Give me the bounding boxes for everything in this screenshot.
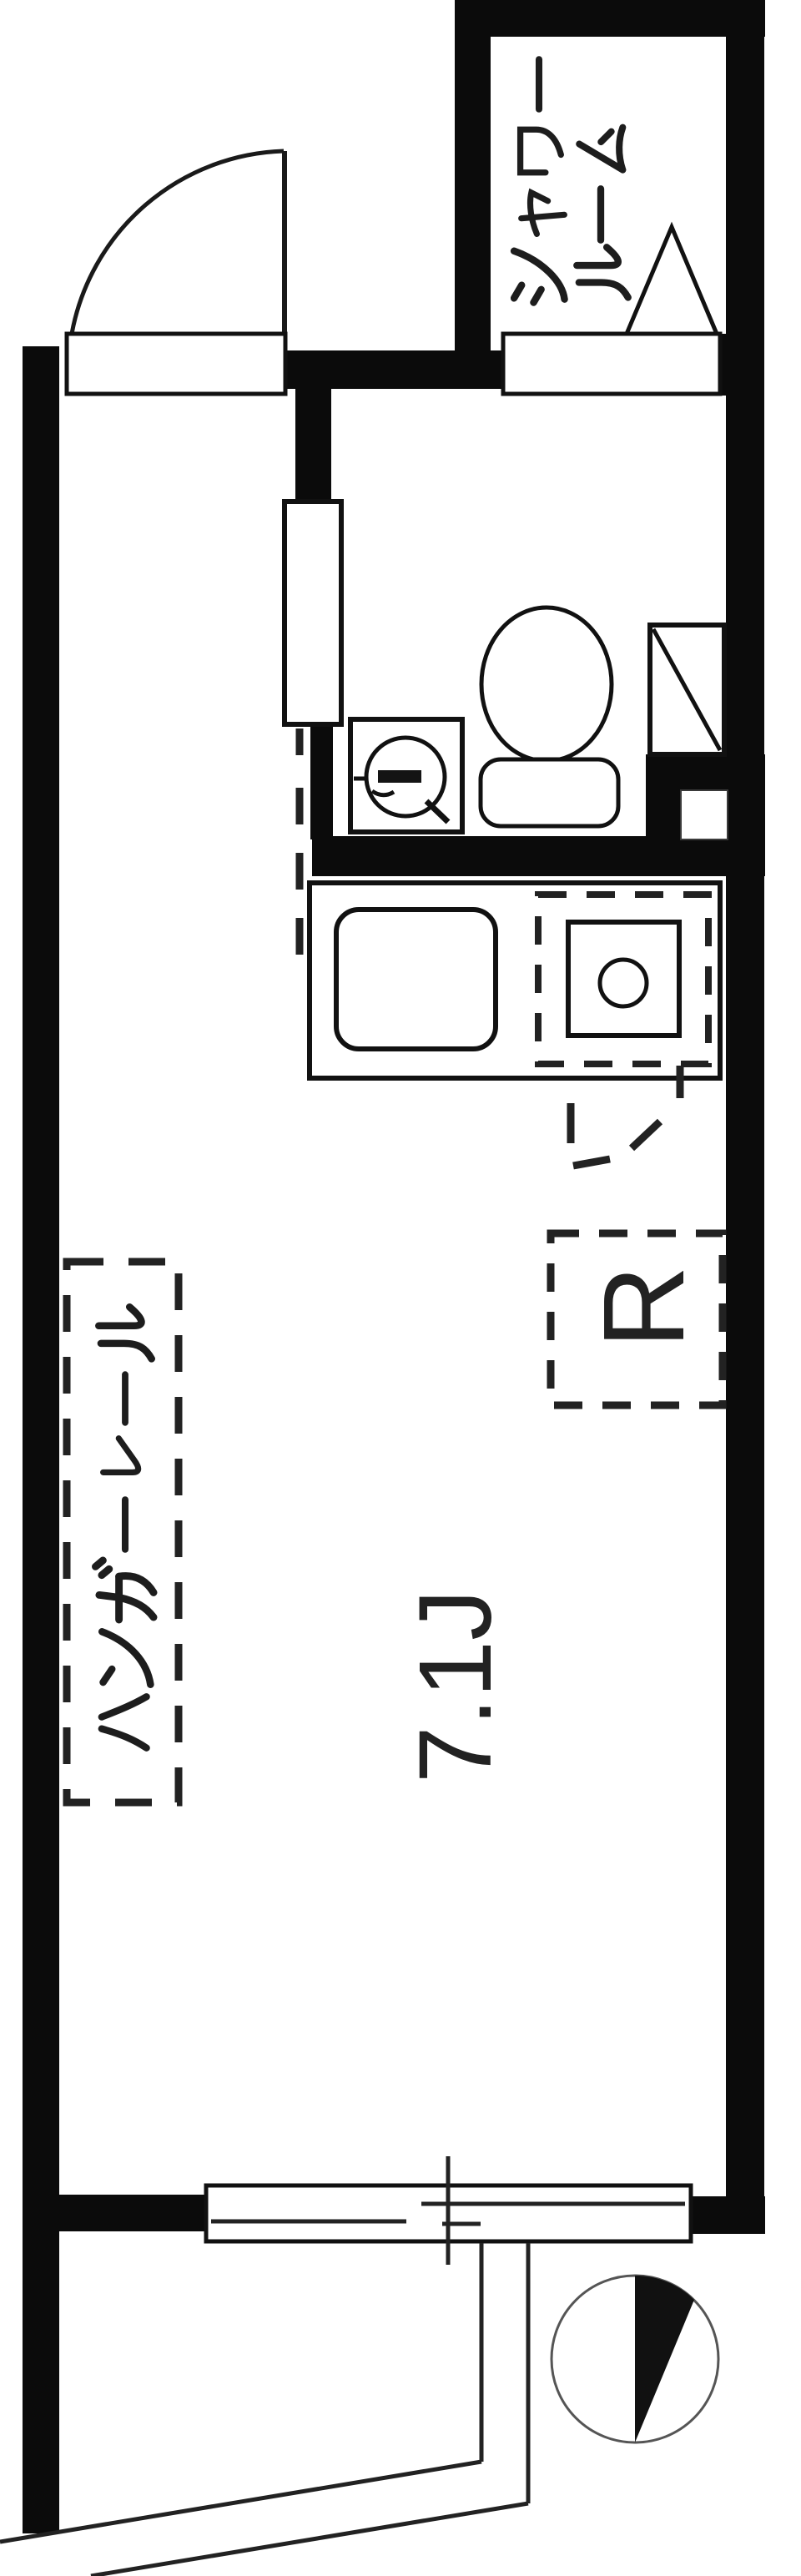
svg-text:R: R (580, 1265, 708, 1348)
svg-text:7.1J: 7.1J (399, 1590, 513, 1784)
